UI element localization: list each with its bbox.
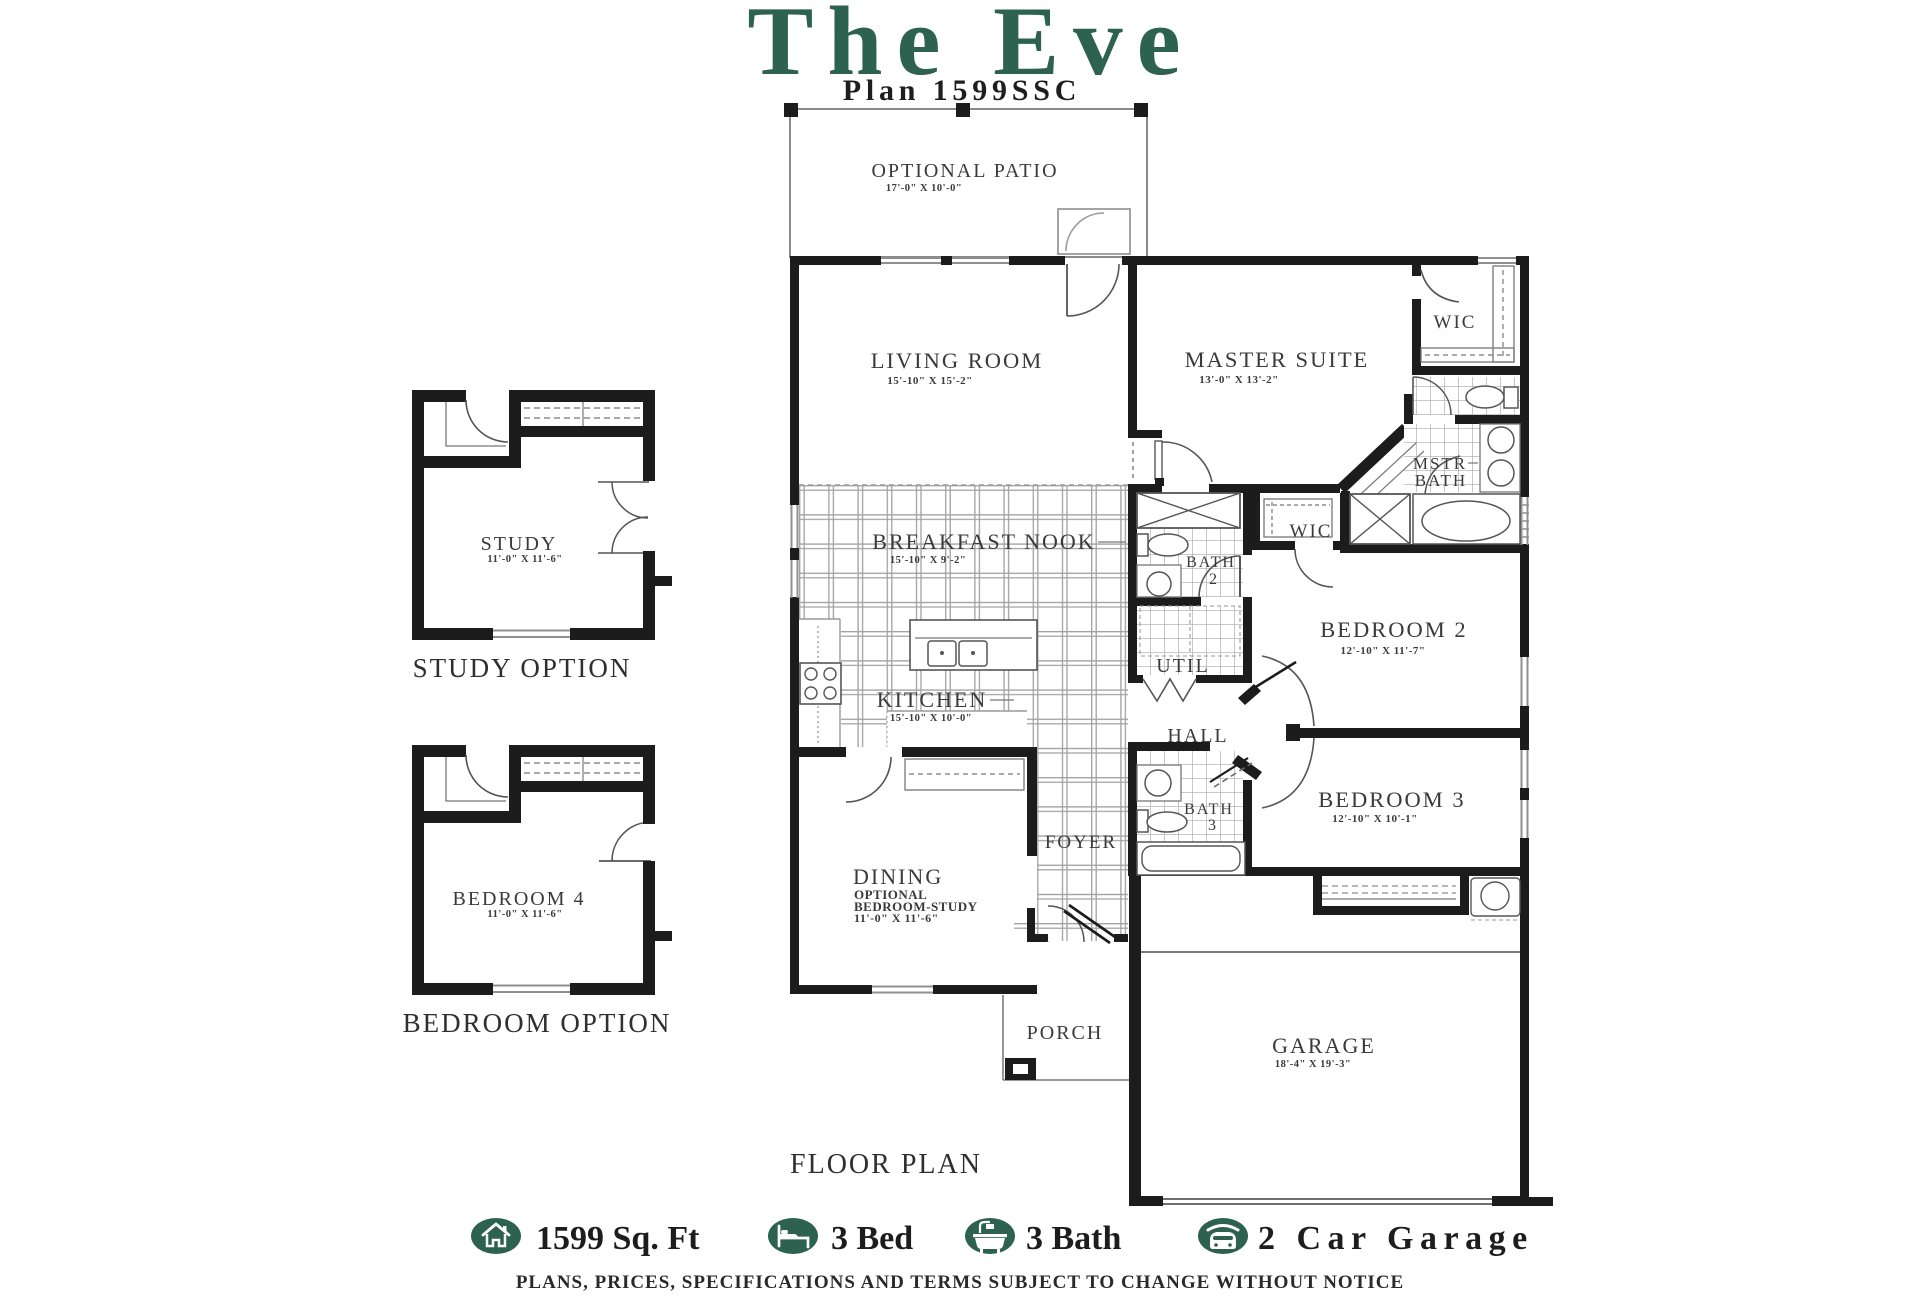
svg-text:BATH: BATH <box>1184 801 1234 818</box>
svg-text:15'-10" X 9'-2": 15'-10" X 9'-2" <box>890 555 966 566</box>
svg-text:BEDROOM 4: BEDROOM 4 <box>452 888 585 910</box>
svg-text:OPTIONAL PATIO: OPTIONAL PATIO <box>871 160 1058 182</box>
svg-text:KITCHEN: KITCHEN <box>877 687 988 712</box>
svg-text:13'-0" X 13'-2": 13'-0" X 13'-2" <box>1199 374 1279 386</box>
svg-text:UTIL: UTIL <box>1156 655 1210 677</box>
svg-text:3: 3 <box>1208 817 1218 834</box>
svg-text:MASTER SUITE: MASTER SUITE <box>1185 347 1370 372</box>
svg-text:STUDY OPTION: STUDY OPTION <box>413 653 632 683</box>
svg-text:15'-10" X 10'-0": 15'-10" X 10'-0" <box>890 713 972 724</box>
svg-text:11'-0" X 11'-6": 11'-0" X 11'-6" <box>487 554 562 565</box>
svg-text:12'-10" X 11'-7": 12'-10" X 11'-7" <box>1341 645 1426 657</box>
svg-text:FOYER: FOYER <box>1045 832 1117 853</box>
svg-text:18'-4" X 19'-3": 18'-4" X 19'-3" <box>1275 1059 1351 1070</box>
svg-text:BEDROOM 2: BEDROOM 2 <box>1320 617 1467 642</box>
svg-text:LIVING ROOM: LIVING ROOM <box>871 348 1044 373</box>
svg-text:BREAKFAST NOOK: BREAKFAST NOOK <box>872 529 1095 554</box>
svg-text:BEDROOM 3: BEDROOM 3 <box>1318 787 1465 812</box>
svg-text:DINING: DINING <box>853 864 943 889</box>
svg-text:3 Bed: 3 Bed <box>831 1220 913 1257</box>
svg-text:Plan 1599SSC: Plan 1599SSC <box>843 74 1081 107</box>
svg-text:HALL: HALL <box>1167 725 1228 747</box>
svg-text:WIC: WIC <box>1434 312 1477 333</box>
svg-text:3 Bath: 3 Bath <box>1026 1220 1122 1257</box>
svg-text:GARAGE: GARAGE <box>1272 1033 1376 1058</box>
svg-text:2: 2 <box>1209 571 1219 588</box>
svg-text:WIC: WIC <box>1290 521 1333 542</box>
svg-text:12'-10" X 10'-1": 12'-10" X 10'-1" <box>1332 813 1418 825</box>
svg-text:15'-10" X 15'-2": 15'-10" X 15'-2" <box>887 375 973 387</box>
svg-text:PLANS, PRICES, SPECIFICATIONS: PLANS, PRICES, SPECIFICATIONS AND TERMS … <box>516 1272 1404 1293</box>
svg-text:2 Car Garage: 2 Car Garage <box>1258 1220 1534 1257</box>
svg-text:11'-0" X 11'-6": 11'-0" X 11'-6" <box>487 909 562 920</box>
svg-text:17'-0" X 10'-0": 17'-0" X 10'-0" <box>886 183 962 194</box>
svg-text:BATH: BATH <box>1415 471 1467 490</box>
svg-text:FLOOR PLAN: FLOOR PLAN <box>790 1149 982 1180</box>
svg-text:STUDY: STUDY <box>481 533 558 555</box>
svg-text:BEDROOM OPTION: BEDROOM OPTION <box>403 1008 672 1038</box>
svg-text:BATH: BATH <box>1186 554 1236 571</box>
svg-text:1599 Sq. Ft: 1599 Sq. Ft <box>536 1220 700 1257</box>
svg-text:PORCH: PORCH <box>1027 1022 1104 1044</box>
svg-text:11'-0" X 11'-6": 11'-0" X 11'-6" <box>854 911 939 925</box>
